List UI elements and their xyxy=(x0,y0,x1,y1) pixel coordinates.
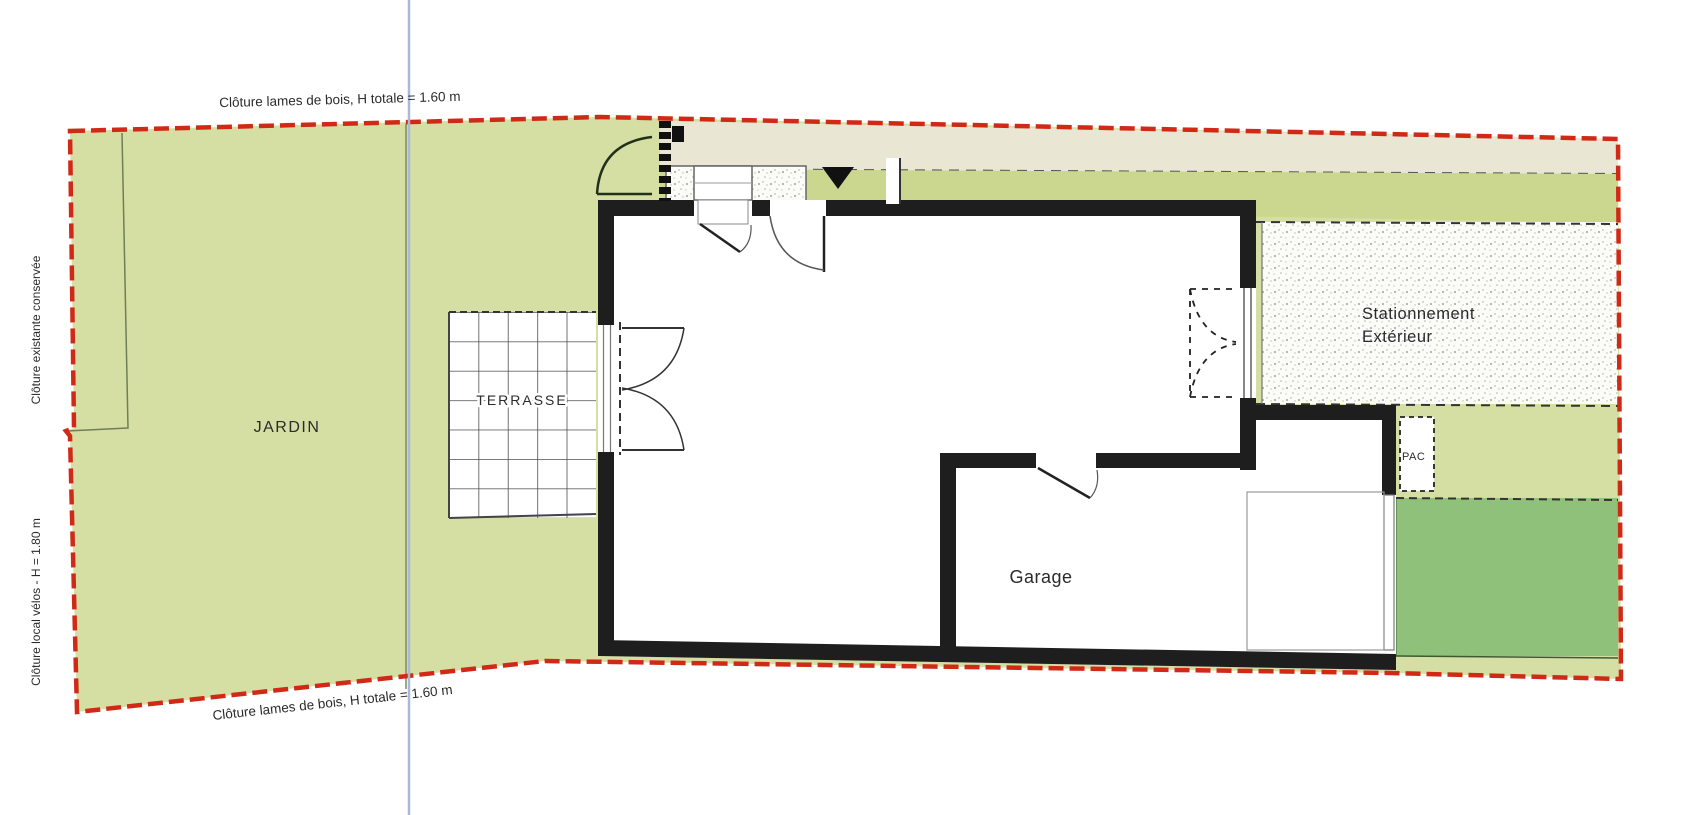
heat-pump-unit: PAC xyxy=(1400,417,1434,491)
front-door-alcove xyxy=(698,200,748,224)
wall-garage-inner-vertical xyxy=(940,453,956,649)
label-fence-bike: Clôture local vélos - H = 1.80 m xyxy=(29,518,43,686)
label-garden: JARDIN xyxy=(254,419,321,436)
label-fence-existing: Clôture existante conservée xyxy=(29,255,43,404)
wall-left-lower xyxy=(598,452,614,656)
north-notch xyxy=(886,158,900,204)
garage-sectional-door xyxy=(1384,495,1394,650)
gate-post-block xyxy=(672,126,684,142)
wall-right-upper xyxy=(1240,200,1256,288)
wall-garage-right xyxy=(1382,405,1396,495)
north-notch-fill xyxy=(886,158,900,204)
site-plan: PAC Clôture lames de bois, H totale = 1.… xyxy=(0,0,1708,815)
wall-left-upper xyxy=(598,200,614,325)
label-parking-line2: Extérieur xyxy=(1362,328,1433,346)
label-terrace: TERRASSE xyxy=(476,392,567,408)
lawn-fill xyxy=(1396,498,1618,656)
wall-garage-inner-horizontal-1 xyxy=(956,453,1036,468)
heat-pump-label: PAC xyxy=(1402,451,1425,463)
terrace-area xyxy=(449,312,596,518)
label-garage: Garage xyxy=(1009,567,1072,587)
label-parking-line1: Stationnement xyxy=(1362,305,1475,323)
wall-garage-top xyxy=(1250,405,1396,420)
wall-top-2 xyxy=(752,200,770,216)
terrace-grid xyxy=(449,312,596,518)
lawn-area xyxy=(1396,498,1618,658)
wall-garage-inner-horizontal-2 xyxy=(1096,453,1252,468)
